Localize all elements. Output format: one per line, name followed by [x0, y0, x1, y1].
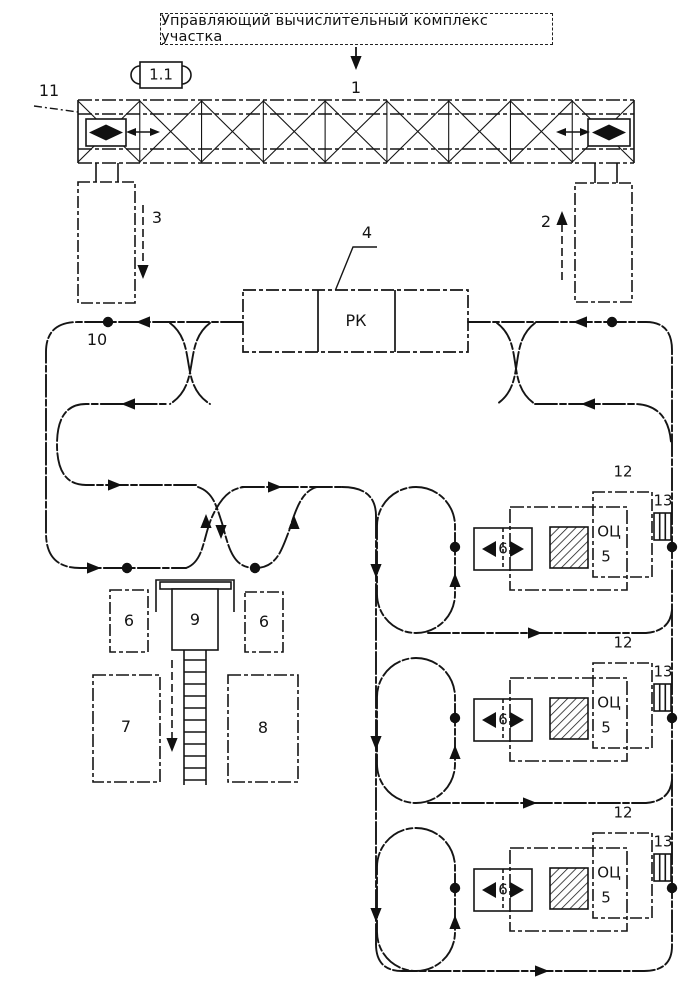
- module3-magazine-label: 13: [653, 835, 672, 850]
- diagram-canvas: [0, 0, 697, 989]
- fms-layout-diagram: Управляющий вычислительный комплекс учас…: [0, 0, 697, 989]
- table-right-label: 6: [259, 614, 269, 630]
- module2-shuttle-label: 6: [498, 713, 508, 728]
- module2-pallet-label: 12: [613, 636, 632, 651]
- module1-pallet-label: 12: [613, 465, 632, 480]
- store-right-label: 8: [258, 720, 268, 736]
- crane-trolley-left-icon: [86, 119, 160, 146]
- callout-11-trolley: 11: [39, 83, 59, 99]
- module2-mc-label: ОЦ: [597, 696, 620, 711]
- module1-shuttle-label: 6: [498, 542, 508, 557]
- callout-2-stacker-right: 2: [541, 214, 551, 230]
- store-left-label: 7: [121, 719, 131, 735]
- module1-magazine-label: 13: [653, 494, 672, 509]
- callout-4-rk: 4: [362, 225, 372, 241]
- flow-arrows: [87, 56, 595, 977]
- callout-3-stacker-left: 3: [152, 210, 162, 226]
- crane-trolley-right-icon: [556, 119, 630, 146]
- module3-mc-label: ОЦ: [597, 866, 620, 881]
- terminal-label: 1.1: [149, 68, 173, 83]
- module2-magazine-label: 13: [653, 665, 672, 680]
- callout-10-loop: 10: [87, 332, 107, 348]
- stacker-left: [78, 163, 143, 303]
- callout-1-crane: 1: [351, 80, 361, 96]
- table-left-label: 6: [124, 613, 134, 629]
- module3-pallet-label: 12: [613, 806, 632, 821]
- module2-mc-number: 5: [601, 721, 611, 736]
- stacker-right: [562, 163, 632, 302]
- module3-shuttle-label: 6: [498, 883, 508, 898]
- control-computer-label: Управляющий вычислительный комплекс учас…: [161, 13, 552, 45]
- module3-mc-number: 5: [601, 891, 611, 906]
- robot-label: 9: [190, 612, 200, 628]
- crane-truss-beam: [78, 100, 634, 163]
- control-computer-box: Управляющий вычислительный комплекс учас…: [160, 13, 553, 45]
- module1-mc-label: ОЦ: [597, 525, 620, 540]
- module1-mc-number: 5: [601, 550, 611, 565]
- rk-station-label: РК: [345, 313, 366, 329]
